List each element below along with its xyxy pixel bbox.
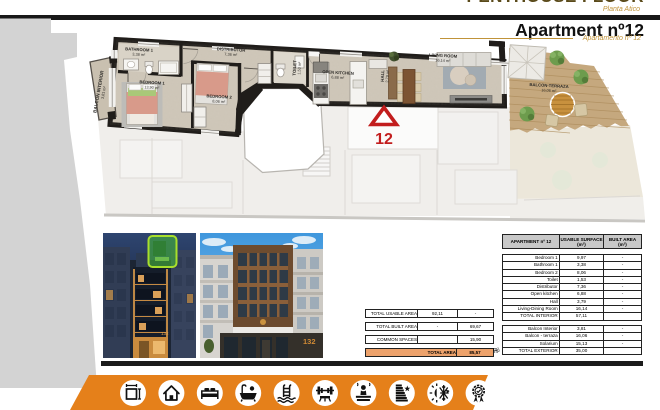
svg-text:132: 132 <box>161 331 169 336</box>
svg-text:3,38 m²: 3,38 m² <box>132 52 146 57</box>
svg-text:12: 12 <box>375 131 393 148</box>
svg-text:8,06 m²: 8,06 m² <box>212 99 226 104</box>
svg-text:132: 132 <box>303 337 316 346</box>
svg-text:1,53 m²: 1,53 m² <box>297 61 302 75</box>
svg-text:6,88 m²: 6,88 m² <box>331 75 345 80</box>
svg-text:7,36 m²: 7,36 m² <box>224 52 238 57</box>
svg-text:2,79 m²: 2,79 m² <box>385 69 390 83</box>
